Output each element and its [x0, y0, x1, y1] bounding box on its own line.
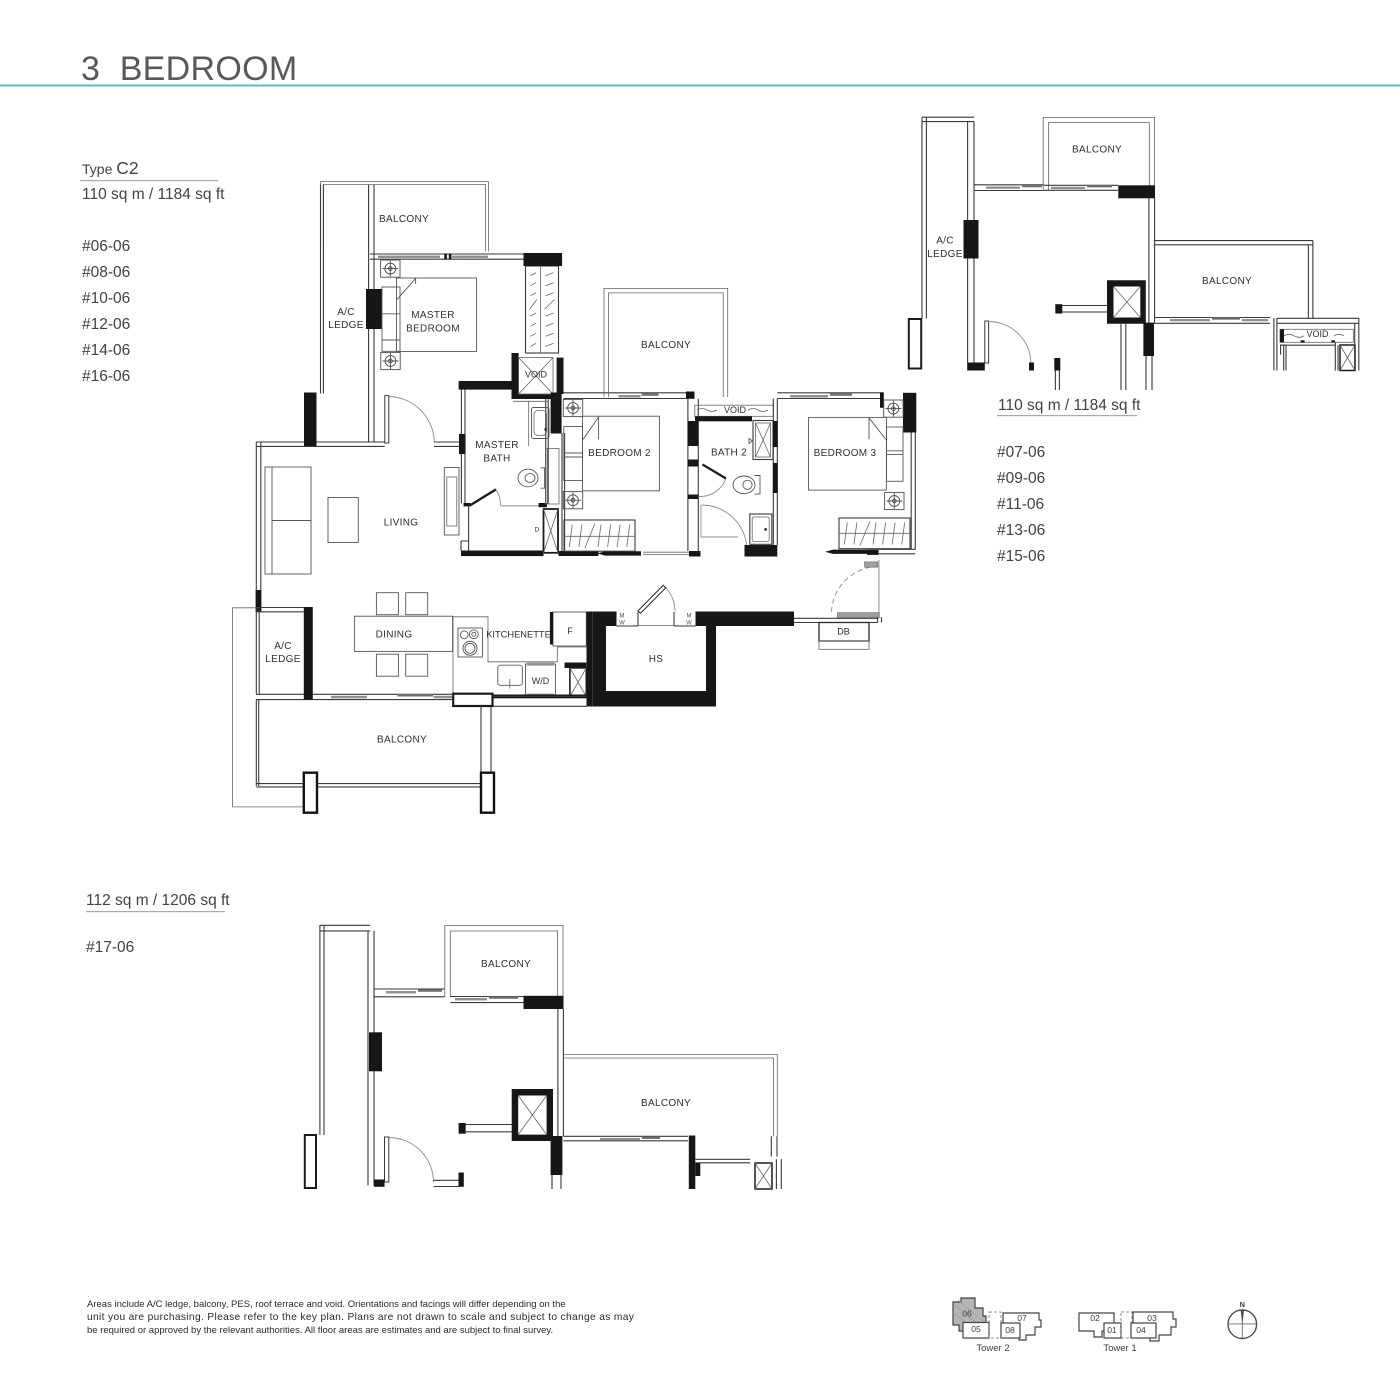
svg-text:A/C: A/C — [337, 307, 355, 318]
svg-text:#15-06: #15-06 — [997, 548, 1045, 565]
svg-text:D: D — [535, 527, 540, 534]
svg-text:LIVING: LIVING — [384, 518, 419, 529]
svg-text:M: M — [620, 614, 625, 620]
svg-text:W: W — [686, 621, 692, 627]
svg-text:VOID: VOID — [1306, 329, 1329, 339]
svg-text:W/D: W/D — [532, 676, 550, 686]
svg-text:W: W — [619, 621, 625, 627]
svg-text:M: M — [687, 614, 692, 620]
svg-text:Tower 1: Tower 1 — [1103, 1343, 1136, 1354]
svg-text:#14-06: #14-06 — [82, 342, 130, 359]
svg-text:unit you are purchasing. Pleas: unit you are purchasing. Please refer to… — [87, 1312, 635, 1323]
svg-text:BEDROOM 2: BEDROOM 2 — [588, 448, 651, 459]
svg-text:05: 05 — [971, 1324, 981, 1334]
svg-text:02: 02 — [1090, 1313, 1100, 1323]
svg-text:#17-06: #17-06 — [86, 939, 134, 956]
svg-text:Type C2: Type C2 — [82, 158, 139, 178]
svg-text:LEDGE: LEDGE — [265, 654, 300, 665]
svg-text:MASTER: MASTER — [475, 440, 518, 451]
svg-text:#11-06: #11-06 — [997, 496, 1044, 513]
svg-text:VOID: VOID — [724, 405, 747, 415]
svg-text:BALCONY: BALCONY — [641, 340, 691, 351]
svg-text:N: N — [1240, 1300, 1245, 1309]
svg-text:BALCONY: BALCONY — [379, 214, 429, 225]
svg-text:03: 03 — [1147, 1313, 1157, 1323]
svg-text:3 BEDROOM: 3 BEDROOM — [81, 50, 297, 88]
svg-text:#12-06: #12-06 — [82, 316, 130, 333]
svg-text:A/C: A/C — [936, 236, 954, 247]
svg-text:04: 04 — [1136, 1325, 1146, 1335]
svg-text:#08-06: #08-06 — [82, 264, 130, 281]
svg-text:BEDROOM: BEDROOM — [406, 324, 460, 335]
svg-text:DB: DB — [837, 627, 850, 637]
svg-text:BALCONY: BALCONY — [1202, 276, 1252, 287]
svg-text:DINING: DINING — [376, 630, 413, 641]
svg-text:#10-06: #10-06 — [82, 290, 130, 307]
svg-text:Areas include A/C ledge, balco: Areas include A/C ledge, balcony, PES, r… — [87, 1299, 566, 1310]
svg-text:LEDGE: LEDGE — [328, 320, 363, 331]
svg-text:Tower 2: Tower 2 — [976, 1343, 1009, 1354]
svg-text:#06-06: #06-06 — [82, 238, 130, 255]
svg-text:110 sq m / 1184 sq ft: 110 sq m / 1184 sq ft — [82, 186, 225, 203]
svg-text:BALCONY: BALCONY — [1072, 145, 1122, 156]
svg-text:VOID: VOID — [525, 370, 548, 380]
svg-text:BALCONY: BALCONY — [377, 735, 427, 746]
svg-text:F: F — [567, 626, 573, 636]
svg-text:BALCONY: BALCONY — [481, 959, 531, 970]
svg-text:BEDROOM 3: BEDROOM 3 — [814, 448, 877, 459]
svg-text:#09-06: #09-06 — [997, 470, 1045, 487]
svg-text:BATH: BATH — [483, 454, 510, 465]
svg-text:HS: HS — [649, 654, 664, 665]
svg-text:110 sq m / 1184 sq ft: 110 sq m / 1184 sq ft — [998, 397, 1141, 414]
svg-text:#07-06: #07-06 — [997, 444, 1045, 461]
svg-text:07: 07 — [1017, 1313, 1027, 1323]
svg-text:BALCONY: BALCONY — [641, 1098, 691, 1109]
svg-text:08: 08 — [1005, 1325, 1015, 1335]
svg-text:BATH 2: BATH 2 — [711, 448, 747, 459]
svg-text:#13-06: #13-06 — [997, 522, 1045, 539]
svg-text:06: 06 — [962, 1309, 972, 1319]
svg-text:01: 01 — [1107, 1325, 1117, 1335]
svg-text:#16-06: #16-06 — [82, 368, 130, 385]
svg-text:112 sq m / 1206 sq ft: 112 sq m / 1206 sq ft — [86, 892, 230, 909]
svg-text:A/C: A/C — [274, 641, 292, 652]
svg-text:KITCHENETTE: KITCHENETTE — [486, 630, 551, 640]
svg-text:LEDGE: LEDGE — [927, 249, 962, 260]
svg-text:MASTER: MASTER — [411, 310, 454, 321]
svg-text:be required or approved by the: be required or approved by the relevant … — [87, 1325, 553, 1336]
